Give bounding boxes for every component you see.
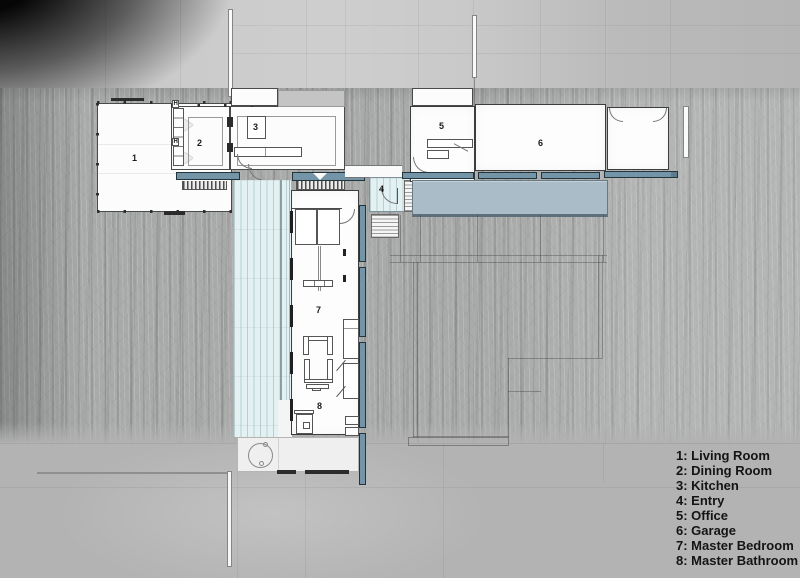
kitchen-roof-panel xyxy=(278,90,345,107)
shower-room xyxy=(343,363,359,399)
appliance-fridge xyxy=(227,117,233,127)
office-return xyxy=(427,150,449,159)
vanity-fixture xyxy=(304,379,333,383)
room-label-living: 1 xyxy=(132,153,137,163)
floor-plan-scene: 1 H H 2 3 7 xyxy=(0,0,800,578)
garage: 6 xyxy=(475,104,606,171)
east-screen-wall-3 xyxy=(359,342,366,428)
living-room-columns-left xyxy=(96,103,99,212)
closet-1 xyxy=(295,209,317,245)
appliance-oven xyxy=(227,143,233,152)
deck-grate-a xyxy=(182,181,227,190)
room-label-kitchen: 3 xyxy=(253,122,258,132)
west-deck xyxy=(233,180,291,437)
shower-stall xyxy=(296,414,313,434)
legend-item-master-bathroom: 8: Master Bathroom xyxy=(676,553,798,568)
deck-grate-b xyxy=(296,181,345,191)
pole-guide-line xyxy=(474,78,475,106)
legend-item-master-bedroom: 7: Master Bedroom xyxy=(676,538,798,553)
site-wall-vertical xyxy=(227,471,232,567)
room-label-bathroom: 8 xyxy=(317,401,322,411)
dining-kitchen-wall xyxy=(229,106,231,170)
south-bar-3 xyxy=(541,172,600,179)
tub-fixture xyxy=(327,336,333,355)
room-label-entry: 4 xyxy=(379,184,384,194)
south-bar-2 xyxy=(478,172,537,179)
legend-item-kitchen: 3: Kitchen xyxy=(676,478,798,493)
room-label-office: 5 xyxy=(439,121,444,131)
closet-2 xyxy=(317,209,340,245)
east-screen-wall-4 xyxy=(359,433,366,485)
room-label-dining: 2 xyxy=(197,138,202,148)
louver-bar-bottom xyxy=(164,211,185,215)
dining-rug-outline xyxy=(188,117,223,166)
bench-notch xyxy=(313,173,327,180)
west-window-wall xyxy=(290,211,293,433)
entry-stairs xyxy=(371,214,399,238)
legend-item-living-room: 1: Living Room xyxy=(676,448,798,463)
office-desk xyxy=(427,139,473,148)
louver-bar-top xyxy=(111,98,144,102)
water-closet xyxy=(343,319,359,359)
east-screen-wall-2 xyxy=(359,267,366,337)
site-pole-right xyxy=(683,106,689,158)
site-pole-center xyxy=(472,15,477,78)
south-bar-1 xyxy=(402,172,474,180)
dining-cabinet-column xyxy=(173,108,184,166)
dresser xyxy=(303,280,333,287)
legend-item-garage: 6: Garage xyxy=(676,523,798,538)
room-label-bedroom: 7 xyxy=(316,305,321,315)
garage-bay-room xyxy=(607,107,669,170)
top-gray-band xyxy=(0,0,800,90)
legend: 1: Living Room 2: Dining Room 3: Kitchen… xyxy=(676,448,798,568)
legend-item-dining-room: 2: Dining Room xyxy=(676,463,798,478)
cabinet-mark-top: H xyxy=(172,100,179,108)
legend-item-entry: 4: Entry xyxy=(676,493,798,508)
east-screen-wall-1 xyxy=(359,205,366,262)
deck-bench-a xyxy=(176,172,240,181)
driveway-court xyxy=(412,180,608,217)
threshold-1 xyxy=(277,470,296,474)
site-wall-line xyxy=(37,472,228,474)
pantry-room xyxy=(231,88,278,106)
site-pole-left xyxy=(228,9,233,97)
lower-terrace xyxy=(237,437,359,472)
south-bar-4 xyxy=(604,171,678,179)
cabinet-mark-middle: H xyxy=(172,138,179,146)
retaining-wall xyxy=(408,437,509,446)
room-label-garage: 6 xyxy=(538,138,543,148)
hall-door-arc xyxy=(340,209,355,224)
entry-door-leaf xyxy=(397,188,398,204)
east-wall-marks xyxy=(343,249,346,285)
threshold-2 xyxy=(305,470,349,474)
bedroom-wing: 7 8 xyxy=(291,190,359,435)
office-upper-room xyxy=(412,88,473,106)
legend-item-office: 5: Office xyxy=(676,508,798,523)
